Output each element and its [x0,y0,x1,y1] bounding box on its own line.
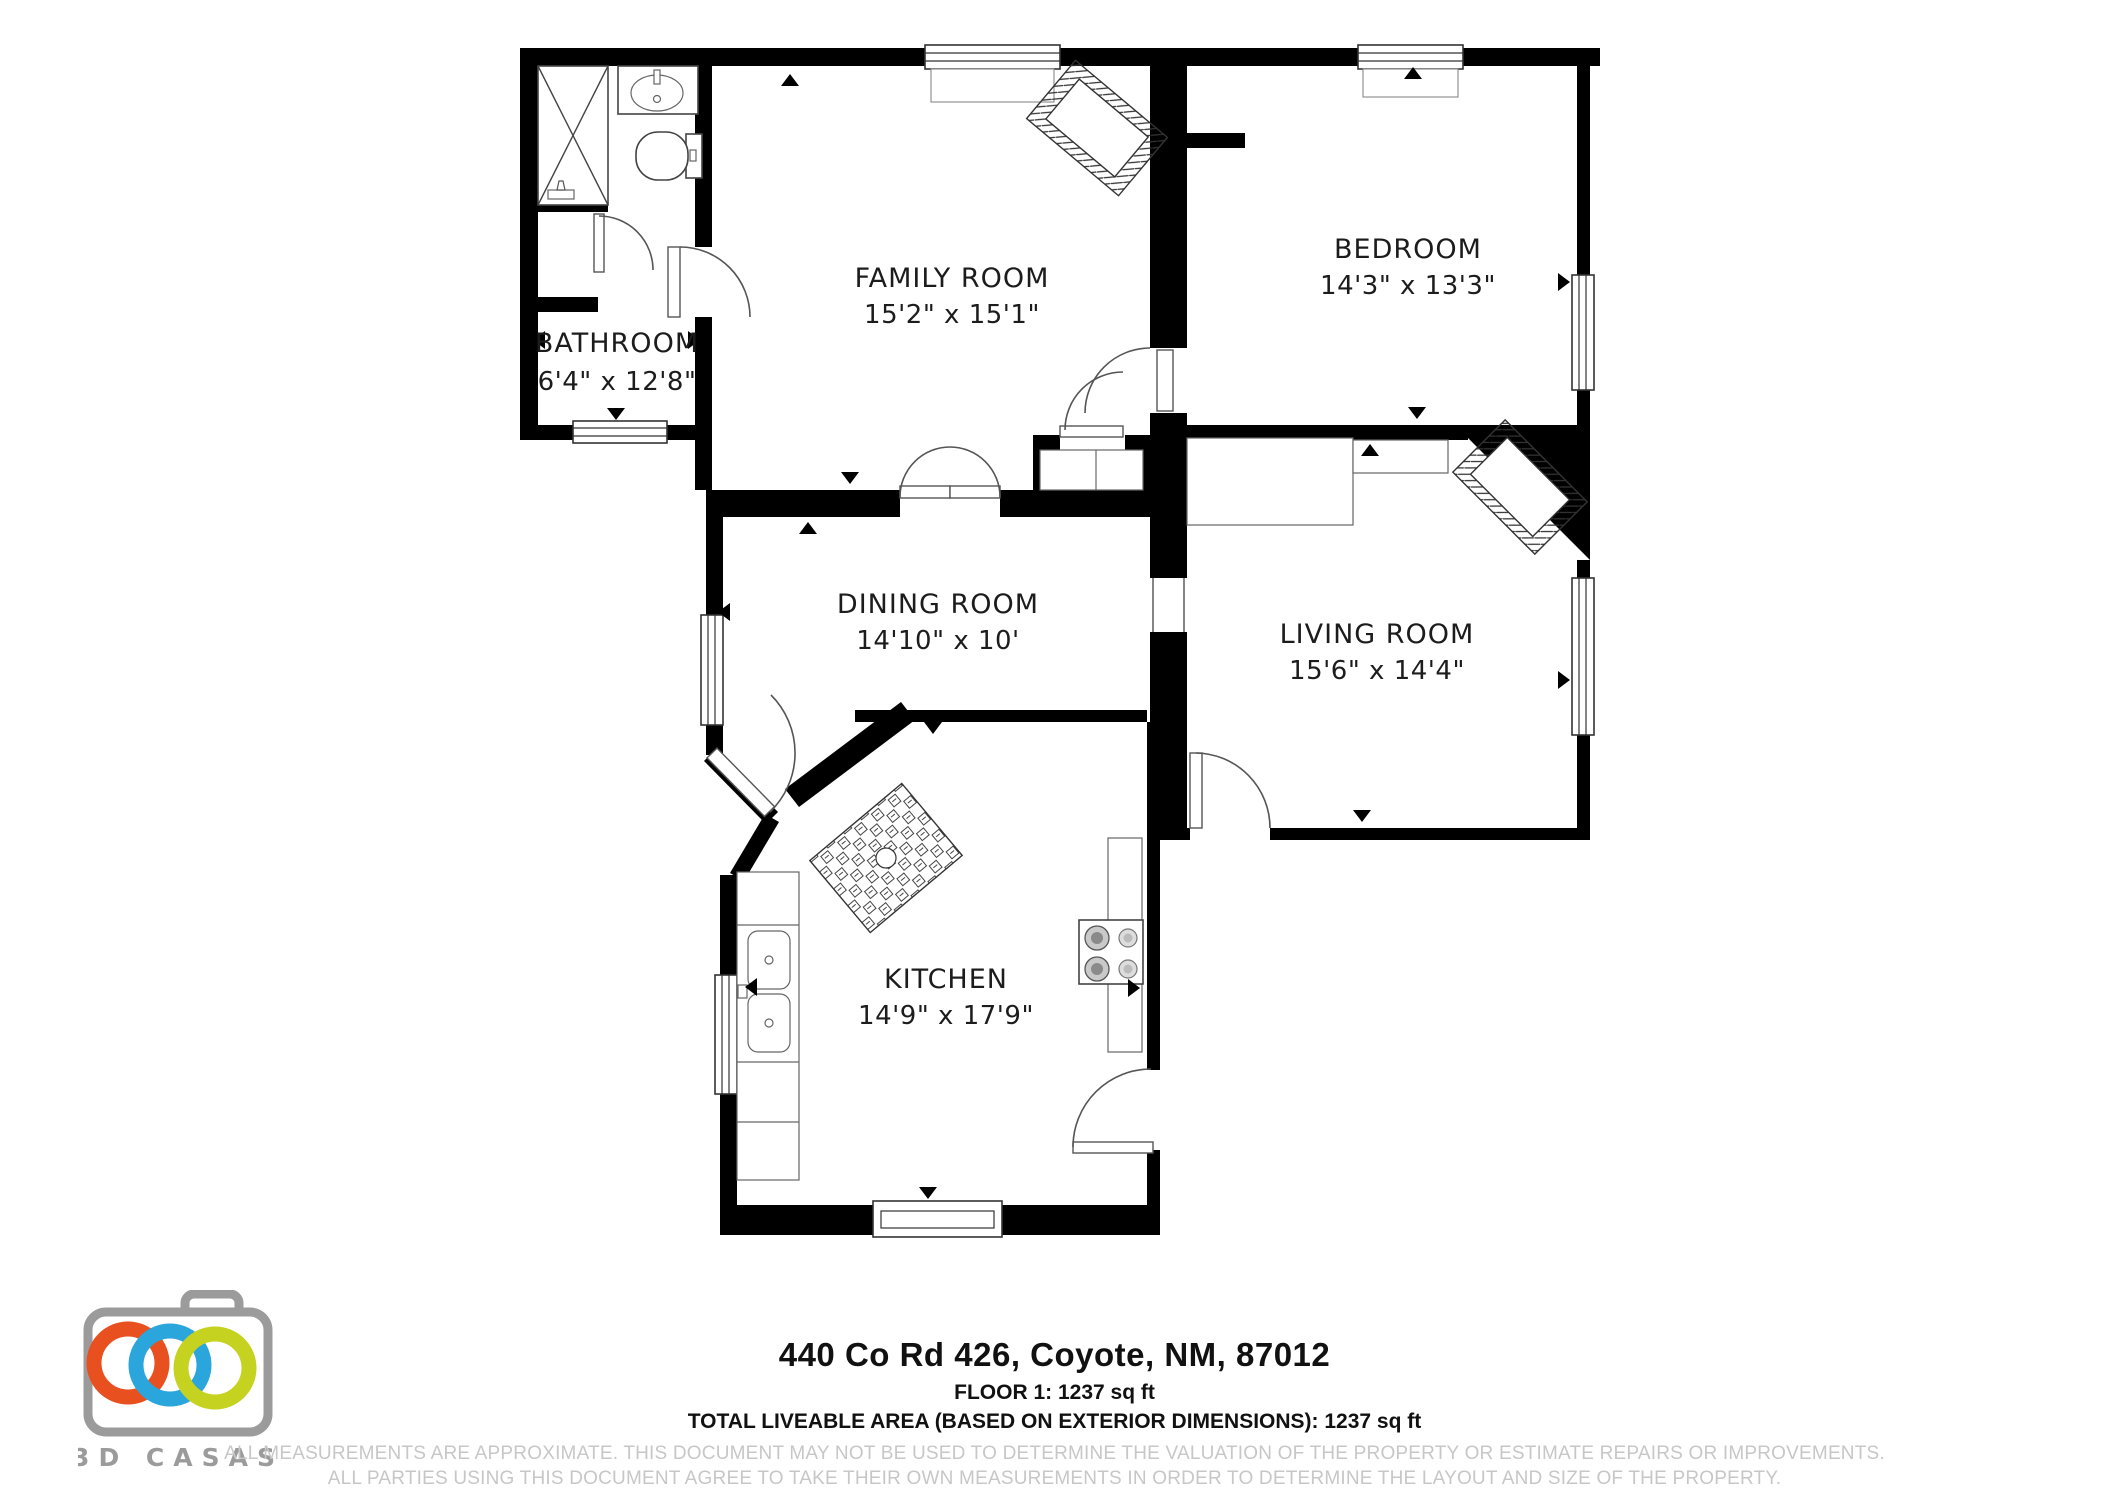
door-icon [1073,1069,1153,1153]
rug-icon [810,783,962,932]
room-dims-dining: 14'10" x 10' [856,626,1019,656]
floorplan-drawing: FAMILY ROOM 15'2" x 15'1" BEDROOM 14'3" … [0,0,2109,1491]
toilet-icon [636,132,702,180]
room-dims-living: 15'6" x 14'4" [1289,656,1465,686]
floor-area-text: FLOOR 1: 1237 sq ft [0,1381,2109,1405]
window-icon [1572,578,1594,735]
total-area-text: TOTAL LIVEABLE AREA (BASED ON EXTERIOR D… [0,1410,2109,1434]
window-icon [925,45,1060,102]
door-icon [594,214,653,272]
window-icon [701,615,723,725]
footer: 440 Co Rd 426, Coyote, NM, 87012 FLOOR 1… [0,1336,2109,1490]
window-icon [873,1201,1002,1237]
window-icon [573,421,667,443]
room-label-family: FAMILY ROOM [855,263,1050,294]
stove-icon [1079,920,1143,984]
room-label-bedroom: BEDROOM [1334,234,1482,265]
cased-opening [1150,578,1187,632]
room-label-living: LIVING ROOM [1280,619,1475,650]
room-dims-family: 15'2" x 15'1" [864,300,1040,330]
bathroom-sink-icon [618,66,698,114]
room-label-kitchen: KITCHEN [884,964,1008,995]
room-labels: FAMILY ROOM 15'2" x 15'1" BEDROOM 14'3" … [535,234,1496,1031]
closet-shelf [1040,450,1143,490]
room-label-dining: DINING ROOM [837,589,1039,620]
floorplan-page: FAMILY ROOM 15'2" x 15'1" BEDROOM 14'3" … [0,0,2109,1491]
door-icon [1060,372,1123,437]
door-icon [668,247,750,317]
disclaimer-line-2: ALL PARTIES USING THIS DOCUMENT AGREE TO… [0,1468,2109,1490]
door-icon [1085,348,1173,413]
property-address: 440 Co Rd 426, Coyote, NM, 87012 [0,1336,2109,1374]
sofa-icon [1187,438,1448,525]
disclaimer-line-1: ALL MEASUREMENTS ARE APPROXIMATE. THIS D… [0,1443,2109,1465]
shower-icon [538,66,608,205]
room-label-bathroom: BATHROOM [535,328,699,359]
room-dims-bedroom: 14'3" x 13'3" [1320,271,1496,301]
door-icon [900,447,1000,498]
window-icon [715,975,737,1094]
door-icon [1190,753,1270,828]
room-dims-bathroom: 6'4" x 12'8" [538,367,697,397]
window-icon [1572,275,1594,390]
room-dims-kitchen: 14'9" x 17'9" [858,1001,1034,1031]
